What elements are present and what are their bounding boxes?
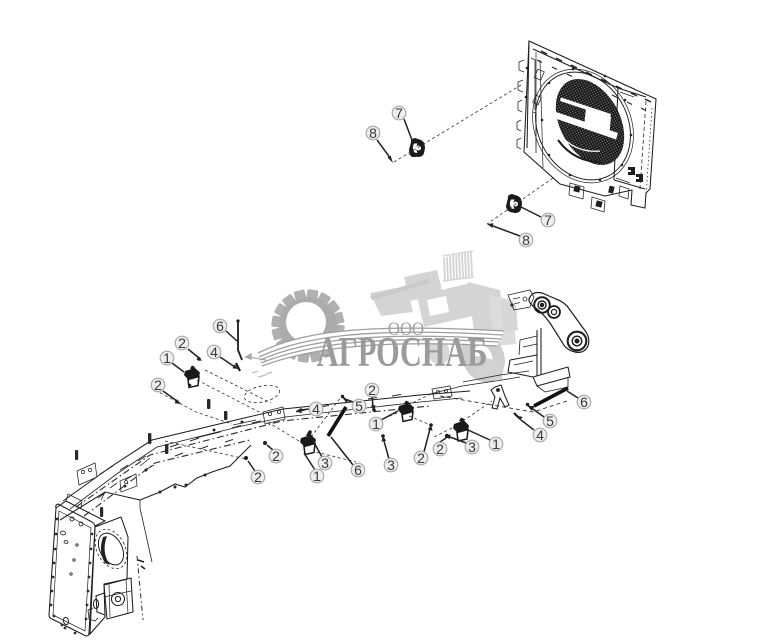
- svg-text:2: 2: [436, 441, 444, 457]
- svg-text:8: 8: [522, 232, 530, 248]
- svg-text:2: 2: [254, 469, 262, 485]
- svg-text:4: 4: [312, 401, 320, 417]
- svg-text:1: 1: [313, 468, 321, 484]
- svg-text:6: 6: [580, 394, 588, 410]
- svg-text:1: 1: [372, 416, 380, 432]
- svg-text:1: 1: [492, 436, 500, 452]
- svg-text:2: 2: [368, 382, 376, 398]
- svg-text:6: 6: [354, 462, 362, 478]
- svg-text:7: 7: [395, 105, 403, 121]
- svg-text:7: 7: [544, 212, 552, 228]
- svg-text:4: 4: [210, 344, 218, 360]
- svg-text:АГРОСНАБ: АГРОСНАБ: [317, 328, 487, 375]
- svg-text:5: 5: [546, 413, 554, 429]
- svg-text:3: 3: [387, 457, 395, 473]
- svg-text:6: 6: [216, 318, 224, 334]
- svg-text:4: 4: [536, 427, 544, 443]
- svg-text:1: 1: [163, 350, 171, 366]
- svg-text:2: 2: [417, 450, 425, 466]
- svg-text:2: 2: [154, 377, 162, 393]
- svg-text:3: 3: [321, 455, 329, 471]
- svg-text:5: 5: [355, 398, 363, 414]
- svg-text:2: 2: [272, 448, 280, 464]
- svg-text:8: 8: [369, 125, 377, 141]
- svg-text:2: 2: [178, 335, 186, 351]
- svg-text:3: 3: [468, 439, 476, 455]
